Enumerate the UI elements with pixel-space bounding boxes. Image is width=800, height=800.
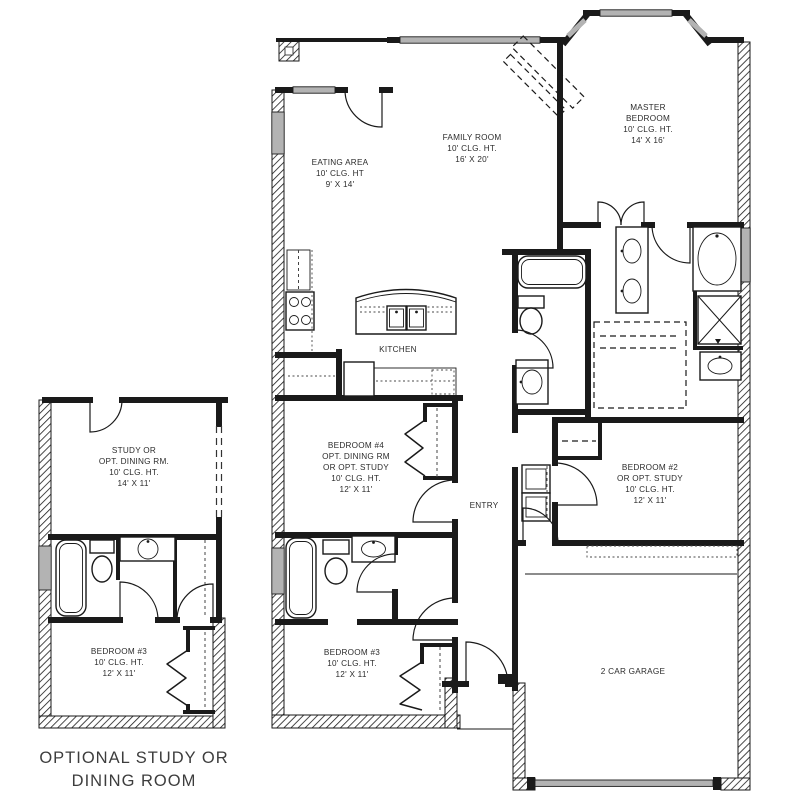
label-bedroom3: 10' CLG. HT. (327, 659, 377, 668)
master-bath-fixtures (594, 227, 741, 408)
label-master-bedroom: 10' CLG. HT. (623, 125, 673, 134)
toilet-tank (90, 540, 114, 553)
bay-window-left (568, 20, 585, 36)
inset-windows (39, 546, 51, 590)
door-swing-master-left (598, 202, 621, 225)
garage-storage-shelf (587, 546, 737, 557)
bifold-door (405, 420, 425, 476)
label-master-bedroom: MASTER (630, 103, 666, 112)
garage-door (535, 780, 713, 786)
double-vanity (616, 227, 648, 313)
bathtub (518, 256, 586, 288)
label-garage: 2 CAR GARAGE (601, 667, 666, 676)
garage-west-exterior-wall (513, 683, 525, 778)
label-bedroom3: 12' X 11' (336, 670, 369, 679)
faucet-icon (147, 540, 150, 543)
door-swing-inset-study (90, 400, 122, 432)
porch-column-core (285, 47, 293, 55)
label-family-room: FAMILY ROOM (443, 133, 502, 142)
master-walk-in-closet (594, 322, 686, 408)
label-inset-study: 14' X 11' (118, 479, 151, 488)
faucet-icon (621, 290, 624, 293)
label-inset-bedroom3: 10' CLG. HT. (94, 658, 144, 667)
toilet-tank (518, 296, 544, 308)
bedroom3-wing-south-wall (272, 715, 460, 728)
toilet (325, 558, 347, 584)
garage-door-jamb-left (527, 777, 535, 790)
door-swing-master-right (621, 202, 644, 225)
label-bedroom2: BEDROOM #2 (622, 463, 678, 472)
label-bedroom4: OR OPT. STUDY (323, 463, 389, 472)
label-inset-bedroom3: 12' X 11' (103, 669, 136, 678)
inset-door-swings (90, 400, 213, 620)
inset-south-wall (39, 716, 225, 728)
faucet-icon (395, 311, 398, 314)
inset-bath-fixtures (56, 537, 205, 616)
label-bedroom4: 12' X 11' (340, 485, 373, 494)
bathtub (56, 540, 86, 616)
label-inset-study: OPT. DINING RM. (99, 457, 169, 466)
cooktop (286, 292, 314, 330)
faucet-icon (372, 541, 375, 544)
toilet-tank (323, 540, 349, 554)
right-exterior-wall (738, 42, 750, 778)
main-plan: MASTER BEDROOM 10' CLG. HT. 14' X 16' FA… (272, 10, 750, 790)
label-family-room: 16' X 20' (455, 155, 489, 164)
main-walls (278, 13, 741, 690)
label-family-room: 10' CLG. HT. (447, 144, 497, 153)
eating-area-window (293, 87, 335, 93)
label-bedroom2: 12' X 11' (634, 496, 667, 505)
door-swing-bedroom4 (413, 480, 455, 522)
vanity (352, 536, 395, 562)
door-swing-inset-closet (177, 584, 213, 620)
bifold-door (167, 650, 188, 706)
faucet-icon (415, 311, 418, 314)
label-bedroom2: 10' CLG. HT. (625, 485, 675, 494)
label-bedroom4: 10' CLG. HT. (331, 474, 381, 483)
optional-fireplace (501, 36, 584, 119)
bath-window (272, 548, 284, 594)
label-bedroom3: BEDROOM #3 (324, 648, 380, 657)
fireplace-hearth (503, 54, 565, 116)
eating-side-window (272, 112, 284, 154)
label-inset-bedroom3: BEDROOM #3 (91, 647, 147, 656)
door-swing-bedroom2 (555, 463, 597, 505)
toilet (92, 556, 112, 582)
label-kitchen: KITCHEN (379, 345, 417, 354)
caption-line-2: DINING ROOM (72, 772, 197, 790)
label-master-bedroom: BEDROOM (626, 114, 670, 123)
faucet-icon (715, 234, 718, 237)
label-inset-study: STUDY OR (112, 446, 156, 455)
label-master-bedroom: 14' X 16' (631, 136, 665, 145)
inset-bath-window (39, 546, 51, 590)
door-swing-inset-bath (120, 582, 158, 620)
closet-rod-lines (600, 336, 680, 348)
door-swing-porch (345, 90, 382, 127)
toilet (520, 308, 542, 334)
fireplace-outline (512, 36, 584, 108)
label-eating-area: EATING AREA (312, 158, 369, 167)
door-swing-master-bath (652, 225, 690, 263)
inset-plan: STUDY OR OPT. DINING RM. 10' CLG. HT. 14… (39, 400, 225, 728)
inset-secondary-walls (118, 537, 213, 712)
label-eating-area: 9' X 14' (326, 180, 355, 189)
label-eating-area: 10' CLG. HT (316, 169, 364, 178)
garage-door-jamb-right (713, 777, 721, 790)
label-bedroom4: OPT. DINING RM (322, 452, 390, 461)
closets-and-storage (400, 408, 737, 710)
optional-counter (432, 370, 454, 394)
label-inset-study: 10' CLG. HT. (109, 468, 159, 477)
bifold-door (400, 662, 422, 710)
bay-window-center (600, 10, 672, 16)
family-room-window (400, 37, 540, 43)
bathtub (286, 538, 316, 618)
inset-open-wall-dashed (217, 426, 222, 518)
floor-plan-page: MASTER BEDROOM 10' CLG. HT. 14' X 16' FA… (0, 0, 800, 800)
label-entry: ENTRY (470, 501, 499, 510)
caption: OPTIONAL STUDY OR DINING ROOM (39, 749, 228, 790)
floor-plan-canvas: MASTER BEDROOM 10' CLG. HT. 14' X 16' FA… (0, 0, 800, 800)
label-bedroom2: OR OPT. STUDY (617, 474, 683, 483)
faucet-icon (719, 356, 722, 359)
garage-south-wall-right (721, 778, 750, 790)
caption-line-1: OPTIONAL STUDY OR (39, 749, 228, 767)
faucet-icon (520, 381, 523, 384)
refrigerator (344, 362, 374, 396)
hall-bath-fixtures (516, 256, 586, 404)
faucet-icon (621, 250, 624, 253)
kitchen-counter (374, 368, 456, 396)
kitchen-fixtures (286, 250, 456, 396)
label-bedroom4: BEDROOM #4 (328, 441, 384, 450)
secondary-bath-fixtures (286, 536, 395, 618)
